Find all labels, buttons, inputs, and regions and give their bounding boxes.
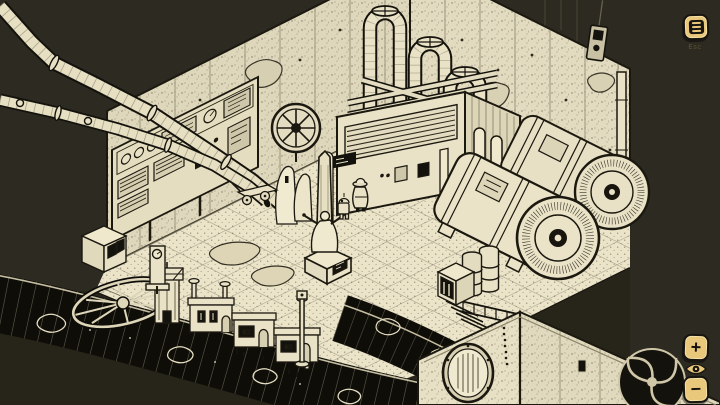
game-viewport[interactable]: 02 03 bbox=[0, 0, 720, 405]
mini-building-3: 03 bbox=[274, 328, 320, 362]
hamburger-menu-icon bbox=[688, 20, 703, 35]
pump-post bbox=[146, 246, 169, 294]
zoom-in-button[interactable]: + bbox=[683, 334, 710, 362]
eye-icon[interactable] bbox=[685, 363, 707, 375]
mini-building-1 bbox=[188, 298, 234, 332]
cabinet bbox=[82, 226, 126, 272]
game-scene: 02 03 bbox=[0, 0, 720, 405]
menu-key-hint: Esc bbox=[682, 43, 708, 51]
menu-button[interactable] bbox=[683, 14, 710, 41]
generator-front-face bbox=[517, 197, 599, 279]
porthole bbox=[443, 344, 493, 402]
zoom-out-button[interactable]: − bbox=[683, 376, 710, 404]
mini-building-2-label: 02 bbox=[242, 329, 250, 337]
mini-building-2: 02 bbox=[232, 313, 276, 347]
player-character[interactable] bbox=[353, 179, 368, 212]
fan-vent-icon bbox=[619, 349, 685, 405]
mini-building-3-label: 03 bbox=[284, 344, 292, 352]
